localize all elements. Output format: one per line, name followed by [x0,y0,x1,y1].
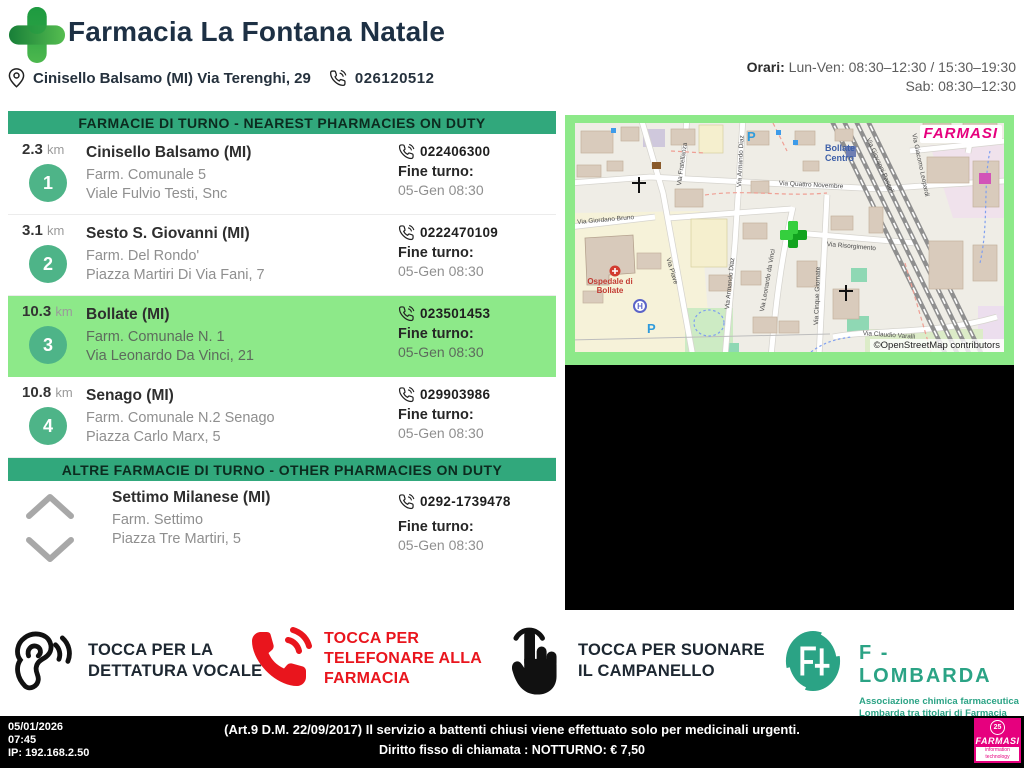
pharmacy-city: Sesto S. Giovanni (MI) [86,225,265,243]
pharmacy-name: Farm. Del Rondo' [86,247,265,266]
distance: 10.8 km [22,384,73,401]
shift-end-value: 05-Gen 08:30 [398,182,553,198]
pharmacy-row-4[interactable]: 10.8 km 4 Senago (MI) Farm. Comunale N.2… [8,377,556,458]
map-panel: Bollate Centro Ospedale di Bollate Via Q… [565,115,1014,365]
scroll-up-button[interactable] [24,491,76,521]
pharmacy-city: Cinisello Balsamo (MI) [86,144,251,162]
map-brand-badge: FARMASI [920,125,1003,143]
pharmacy-row-2[interactable]: 3.1 km 2 Sesto S. Giovanni (MI) Farm. De… [8,215,556,296]
shift-end-value: 05-Gen 08:30 [398,537,558,553]
pharmacy-phone: 026120512 [355,70,435,87]
rank-badge: 2 [29,245,67,283]
pharmacy-name: Farm. Comunale 5 [86,166,251,185]
pharmacy-city: Senago (MI) [86,387,275,405]
action-line: FARMACIA [324,669,482,689]
f-lombarda-logo-icon [783,626,843,696]
phone-icon [398,493,415,510]
shift-end-label: Fine turno: [398,519,558,535]
pharmacy-row-1[interactable]: 2.3 km 1 Cinisello Balsamo (MI) Farm. Co… [8,134,556,215]
pharmacy-street: Viale Fulvio Testi, Snc [86,185,251,204]
status-footer: 05/01/2026 07:45 IP: 192.168.2.50 (Art.9… [0,716,1024,768]
hours-label: Orari: [747,59,785,75]
partner-name: F - LOMBARDA [859,642,1024,688]
pharmacy-phone-line: 029903986 [398,386,553,403]
phone-icon [398,305,415,322]
black-panel [565,365,1014,610]
action-line: TELEFONARE ALLA [324,649,482,669]
pharmacy-street: Piazza Tre Martiri, 5 [112,530,270,549]
chevron-down-icon [24,535,76,565]
duty-section-header: FARMACIE DI TURNO - NEAREST PHARMACIES O… [8,111,556,134]
ear-icon [10,628,72,694]
pharmacy-cross-logo [8,6,66,64]
pharmacy-street: Piazza Carlo Marx, 5 [86,428,275,447]
action-line: TOCCA PER LA [88,640,262,661]
phone-call-icon [248,626,314,692]
location-pin-icon [8,68,25,88]
footer-date: 05/01/2026 [8,721,89,734]
call-pharmacy-button[interactable]: TOCCA PER TELEFONARE ALLA FARMACIA [248,626,482,692]
shift-end-value: 05-Gen 08:30 [398,425,553,441]
osm-attribution: ©OpenStreetMap contributors [870,339,1004,352]
other-section-header: ALTRE FARMACIE DI TURNO - OTHER PHARMACI… [8,458,556,481]
action-line: TOCCA PER SUONARE [578,640,765,661]
pharmacy-phone-line: 023501453 [398,305,553,322]
farmasi-tagline: information technology [976,747,1019,761]
map-station-label: Bollate Centro [825,143,871,163]
map-image [575,123,1004,352]
shift-end-value: 05-Gen 08:30 [398,344,553,360]
parking-icon: P [647,321,656,336]
farmasi-wordmark: FARMASI [976,736,1020,746]
pharmacy-phone-line: 0292-1739478 [398,493,558,510]
hospital-icon: H [633,299,647,313]
shift-end-label: Fine turno: [398,326,553,342]
other-pharmacy-entry: Settimo Milanese (MI) Farm. Settimo Piaz… [8,481,556,593]
shift-end-label: Fine turno: [398,245,553,261]
rank-badge: 1 [29,164,67,202]
action-line: TOCCA PER [324,629,482,649]
ring-doorbell-button[interactable]: TOCCA PER SUONARE IL CAMPANELLO [506,620,765,702]
map-hospital-label: Ospedale di Bollate [581,277,639,295]
pharmacy-name: Farm. Comunale N.2 Senago [86,409,275,428]
street-map: Bollate Centro Ospedale di Bollate Via Q… [575,123,1004,352]
pharmacy-phone-line: 0222470109 [398,224,553,241]
footer-night-fee: Diritto fisso di chiamata : NOTTURNO: € … [162,743,862,757]
shift-end-label: Fine turno: [398,164,553,180]
scroll-down-button[interactable] [24,535,76,565]
phone-icon [398,143,415,160]
f-lombarda-association: F - LOMBARDA Associazione chimica farmac… [783,626,1024,720]
action-line: IL CAMPANELLO [578,661,765,682]
action-line: DETTATURA VOCALE [88,661,262,682]
parking-icon: P [747,129,756,144]
pharmacy-street: Via Leonardo Da Vinci, 21 [86,347,254,366]
distance: 2.3 km [22,141,64,158]
pharmacy-name: Farm. Comunale N. 1 [86,328,254,347]
distance: 3.1 km [22,222,64,239]
opening-hours: Orari: Lun-Ven: 08:30–12:30 / 15:30–19:3… [747,58,1016,96]
page-title: Farmacia La Fontana Natale [68,16,445,48]
footer-ip: IP: 192.168.2.50 [8,747,89,760]
pharmacy-name: Farm. Settimo [112,511,270,530]
shift-end-label: Fine turno: [398,407,553,423]
rank-badge: 4 [29,407,67,445]
distance: 10.3 km [22,303,73,320]
pharmacy-city: Bollate (MI) [86,306,254,324]
phone-icon [398,386,415,403]
pharmacy-street: Piazza Martiri Di Via Fani, 7 [86,266,265,285]
app-header: Farmacia La Fontana Natale Cinisello Bal… [0,0,1024,108]
farmasi-badge: 25 [990,720,1005,735]
footer-notice: (Art.9 D.M. 22/09/2017) Il servizio a ba… [162,722,862,737]
hours-saturday: Sab: 08:30–12:30 [747,77,1016,96]
pharmacy-lists: FARMACIE DI TURNO - NEAREST PHARMACIES O… [8,111,556,593]
voice-dictation-button[interactable]: TOCCA PER LA DETTATURA VOCALE [10,628,262,694]
phone-icon [329,69,347,87]
rank-badge: 3 [29,326,67,364]
partner-subtitle: Associazione chimica farmaceutica [859,696,1024,708]
phone-icon [398,224,415,241]
farmasi-logo: 25 FARMASI information technology [974,718,1021,763]
pharmacy-address: Cinisello Balsamo (MI) Via Terenghi, 29 [33,70,311,87]
pharmacy-city: Settimo Milanese (MI) [112,489,270,507]
pharmacy-row-3-selected[interactable]: 10.3 km 3 Bollate (MI) Farm. Comunale N.… [8,296,556,377]
footer-time: 07:45 [8,734,89,747]
shift-end-value: 05-Gen 08:30 [398,263,553,279]
hours-weekdays: Lun-Ven: 08:30–12:30 / 15:30–19:30 [789,59,1016,75]
pharmacy-address-row: Cinisello Balsamo (MI) Via Terenghi, 29 … [8,68,434,88]
hand-press-icon [506,620,564,702]
pharmacy-phone-line: 022406300 [398,143,553,160]
chevron-up-icon [24,491,76,521]
